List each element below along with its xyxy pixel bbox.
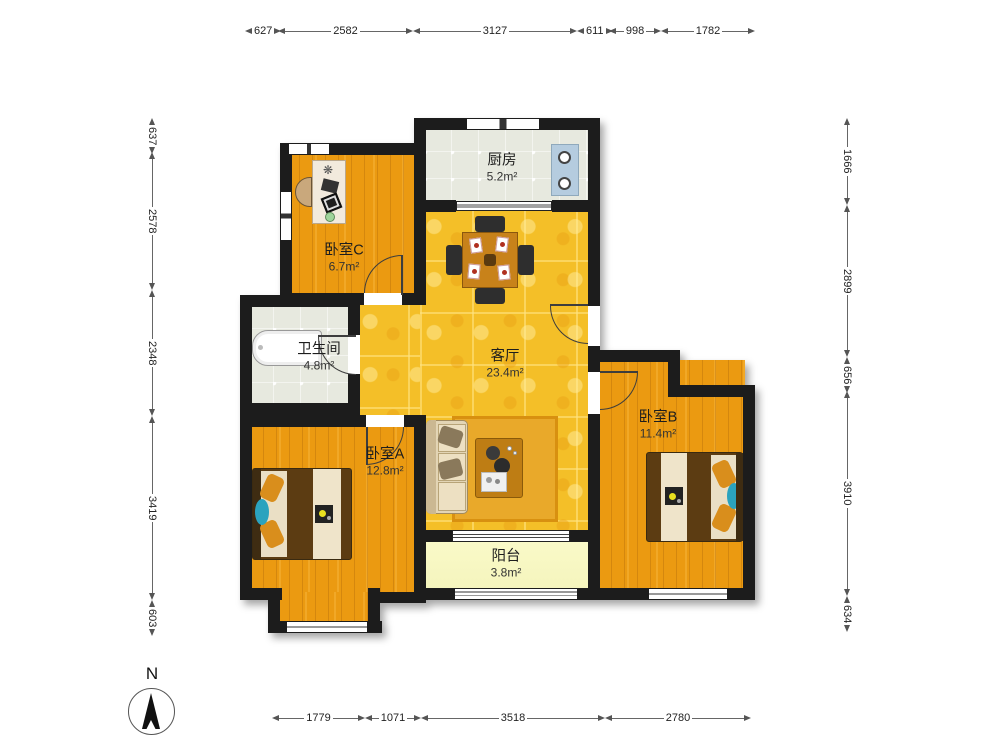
room-label-living: 客厅23.4m² <box>486 347 523 380</box>
bedroomB-bed <box>646 452 743 542</box>
placemat-dot <box>472 269 477 274</box>
room-label-bathroom: 卫生间4.8m² <box>297 340 341 373</box>
bathtub-drain <box>258 345 263 350</box>
tray-item <box>495 479 500 484</box>
device-dot <box>327 516 331 520</box>
wall-segment <box>578 588 600 600</box>
wall-segment <box>402 293 426 305</box>
table-centerpiece <box>484 254 496 266</box>
dim-top-3127: 3127 <box>413 24 577 38</box>
desk-plant: ❋ <box>321 163 335 177</box>
dim-left-2348: 2348 <box>145 290 159 416</box>
window <box>288 143 330 155</box>
dim-top-2582: 2582 <box>278 24 413 38</box>
balcony-sliding-door <box>452 530 570 542</box>
wall-segment <box>552 200 600 212</box>
bedroomC-door-leaf <box>401 255 403 295</box>
placemat-dot <box>502 270 507 275</box>
dim-bottom-2780: 2780 <box>605 711 751 725</box>
dining-chair <box>518 245 534 275</box>
bed-device <box>315 505 333 523</box>
wall-segment <box>268 621 286 633</box>
wall-segment <box>414 530 452 542</box>
dining-chair <box>446 245 462 275</box>
window <box>466 118 540 130</box>
wall-segment <box>600 588 648 600</box>
desk-stool <box>325 212 335 222</box>
dim-top-611: 611 <box>577 24 609 38</box>
wall-segment <box>348 374 360 415</box>
wall-segment <box>240 415 366 427</box>
door-opening-bedroomA <box>366 415 404 427</box>
device-light <box>319 510 326 517</box>
room-label-bedroomC: 卧室C6.7m² <box>324 241 363 274</box>
dining-chair <box>475 216 505 232</box>
dim-top-627: 627 <box>245 24 278 38</box>
bay-window <box>286 621 368 633</box>
wall-segment <box>240 403 360 415</box>
coffee-cup <box>513 451 517 455</box>
wall-segment <box>348 295 360 335</box>
device-light <box>669 493 676 500</box>
coffee-table-tray <box>481 472 507 492</box>
hallway-floor <box>356 303 422 421</box>
wall-segment <box>588 350 680 362</box>
coffee-cup <box>507 446 512 451</box>
tray-item <box>486 477 492 483</box>
bed-device <box>665 487 683 505</box>
dim-right-3910: 3910 <box>840 391 854 596</box>
bedroomB-door-leaf <box>600 371 638 373</box>
wall-segment <box>570 530 600 542</box>
compass-needle-notch <box>146 720 156 730</box>
door-opening-entry <box>588 306 600 346</box>
dim-bottom-1071: 1071 <box>365 711 421 725</box>
entry-door-leaf <box>550 304 588 306</box>
stove-burner <box>558 177 571 190</box>
dim-right-1666: 1666 <box>840 118 854 205</box>
wall-segment <box>240 295 360 307</box>
balcony-window <box>454 588 578 600</box>
dining-chair <box>475 288 505 304</box>
wall-segment <box>240 295 252 415</box>
door-opening-bedroomB <box>588 372 600 414</box>
window <box>648 588 728 600</box>
wall-segment <box>728 588 755 600</box>
wall-segment <box>414 415 426 600</box>
dim-left-637: 637 <box>145 118 159 152</box>
wall-segment <box>414 200 456 212</box>
sofa-back <box>426 420 436 514</box>
dim-left-3419: 3419 <box>145 416 159 600</box>
stove-burner <box>558 151 571 164</box>
wall-segment <box>668 385 755 397</box>
placemat-dot <box>500 242 505 247</box>
bed-round-pillow <box>255 499 269 525</box>
room-label-bedroomB: 卧室B11.4m² <box>639 408 678 441</box>
dim-right-656: 656 <box>840 357 854 391</box>
compass-north-label: N <box>146 664 158 684</box>
bedroomA-bed <box>252 468 352 560</box>
window <box>280 191 292 241</box>
wall-segment <box>240 415 252 600</box>
wall-segment <box>743 385 755 600</box>
compass-icon <box>128 688 175 735</box>
dim-bottom-3518: 3518 <box>421 711 605 725</box>
dim-left-2578: 2578 <box>145 152 159 290</box>
dim-top-998: 998 <box>609 24 661 38</box>
dim-left-603: 603 <box>145 600 159 632</box>
door-opening-bedroomC <box>364 293 402 305</box>
placemat-dot <box>474 243 479 248</box>
dim-bottom-1779: 1779 <box>272 711 365 725</box>
room-label-balcony: 阳台3.8m² <box>491 547 522 580</box>
room-label-bedroomA: 卧室A12.8m² <box>366 445 405 478</box>
sofa-cushion <box>438 482 466 511</box>
dim-right-2899: 2899 <box>840 205 854 357</box>
dim-right-634: 634 <box>840 596 854 629</box>
wall-segment <box>376 592 426 603</box>
dim-top-1782: 1782 <box>661 24 755 38</box>
device-dot <box>677 499 681 503</box>
room-label-kitchen: 厨房5.2m² <box>487 151 518 184</box>
bathroom-door-leaf <box>318 335 356 337</box>
kitchen-sliding-door <box>456 201 552 211</box>
